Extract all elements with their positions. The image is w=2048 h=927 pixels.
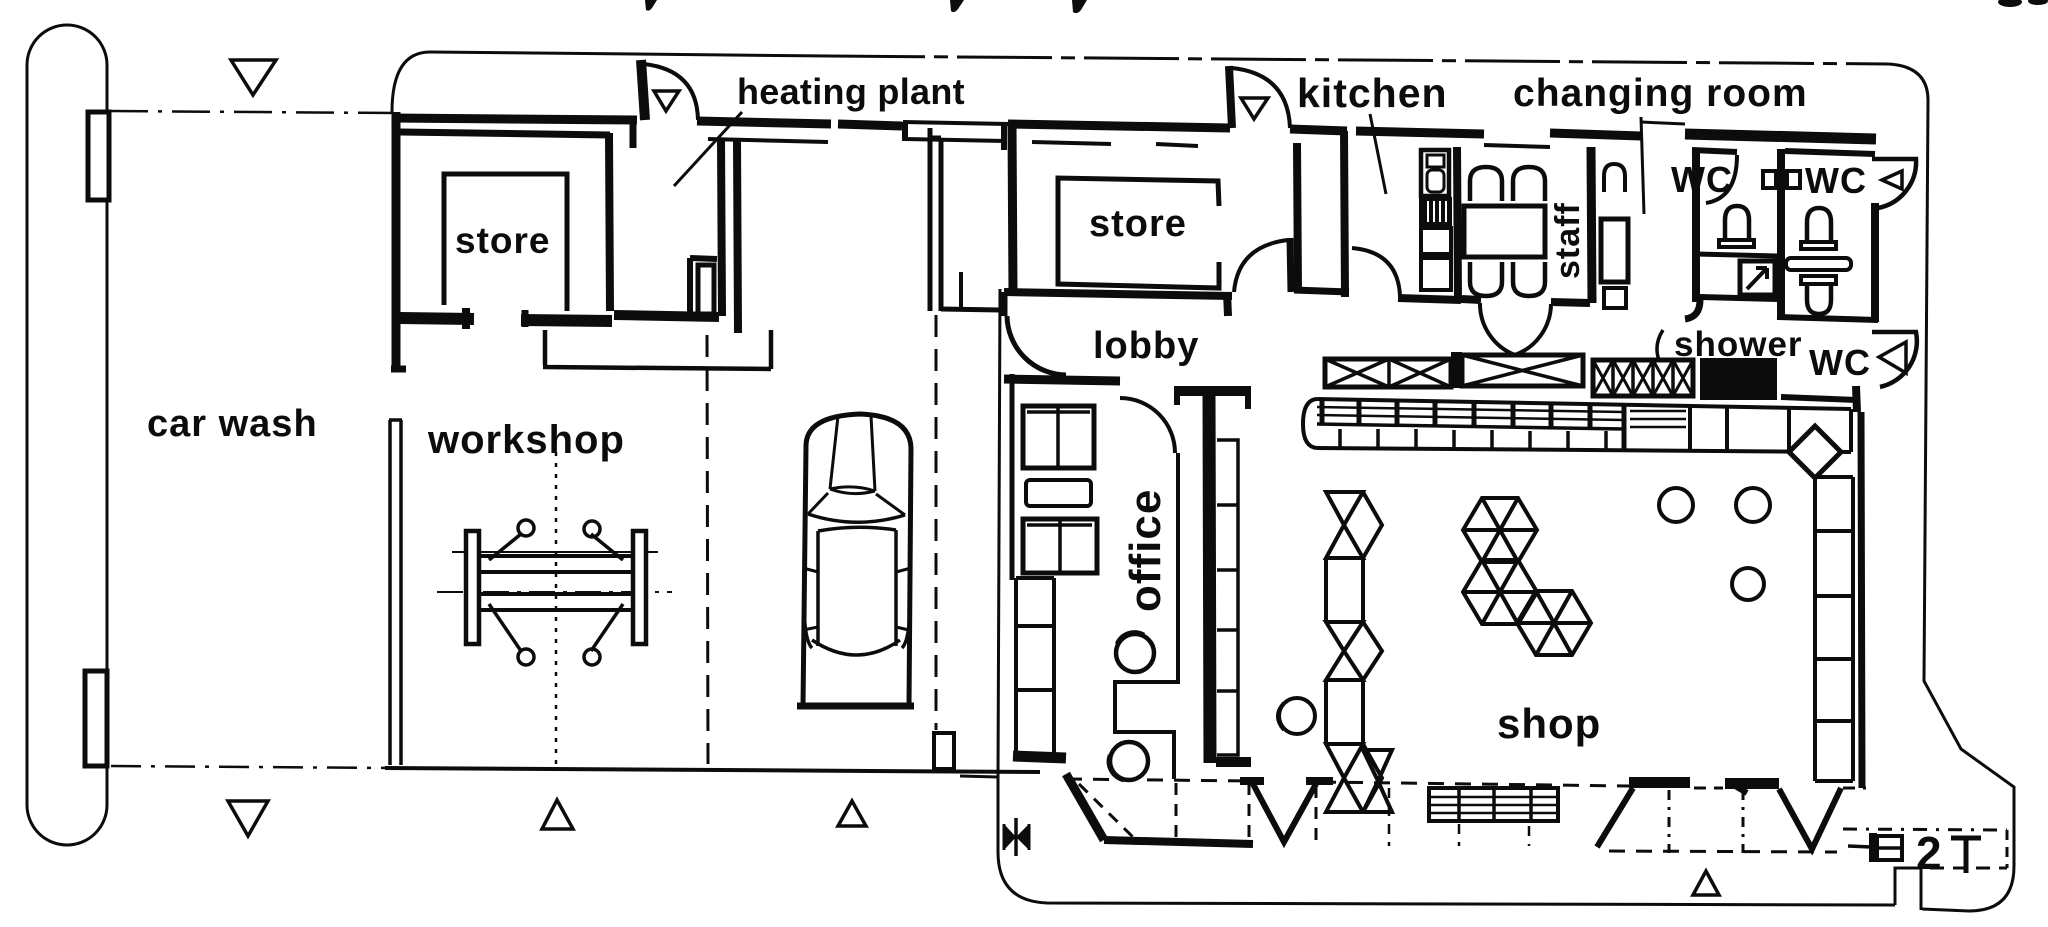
- svg-text:staff: staff: [1549, 202, 1587, 279]
- svg-text:2: 2: [1916, 827, 1943, 879]
- svg-text:kitchen: kitchen: [1297, 70, 1448, 116]
- svg-text:shop: shop: [1497, 700, 1601, 747]
- svg-text:WC: WC: [1805, 160, 1867, 201]
- svg-text:store: store: [455, 220, 550, 261]
- svg-text:workshop: workshop: [427, 418, 625, 462]
- svg-text:WC: WC: [1809, 342, 1871, 383]
- svg-text:lobby: lobby: [1093, 325, 1199, 367]
- svg-text:heating plant: heating plant: [737, 71, 965, 112]
- svg-text:car wash: car wash: [147, 403, 318, 445]
- svg-text:store: store: [1089, 203, 1187, 245]
- svg-text:office: office: [1121, 489, 1170, 612]
- svg-text:changing room: changing room: [1513, 72, 1808, 115]
- svg-text:WC: WC: [1671, 159, 1733, 200]
